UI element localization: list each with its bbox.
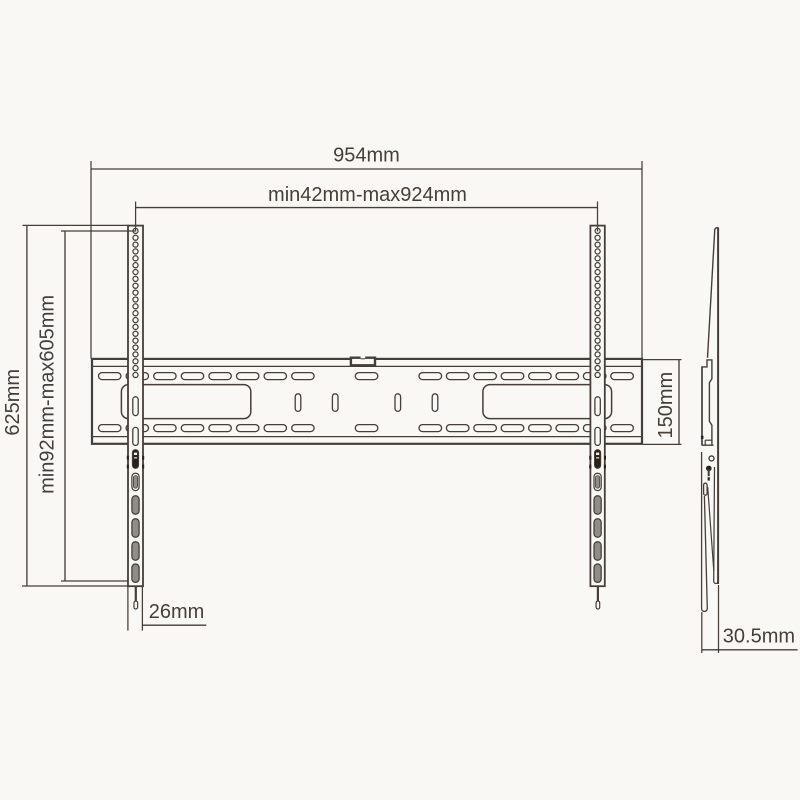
- svg-text:min42mm-max924mm: min42mm-max924mm: [268, 184, 467, 206]
- svg-text:954mm: 954mm: [333, 144, 400, 166]
- svg-text:625mm: 625mm: [2, 369, 24, 436]
- svg-text:150mm: 150mm: [655, 372, 677, 439]
- svg-text:min92mm-max605mm: min92mm-max605mm: [37, 295, 59, 494]
- svg-text:30.5mm: 30.5mm: [723, 626, 795, 648]
- svg-text:26mm: 26mm: [149, 601, 205, 623]
